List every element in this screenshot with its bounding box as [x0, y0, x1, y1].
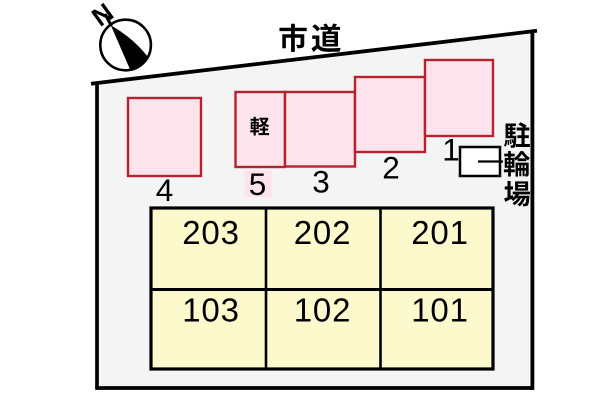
- svg-text:201: 201: [411, 214, 468, 251]
- svg-text:101: 101: [411, 292, 468, 329]
- svg-text:3: 3: [312, 164, 330, 200]
- svg-text:202: 202: [294, 214, 351, 251]
- svg-text:102: 102: [294, 292, 351, 329]
- svg-text:5: 5: [249, 166, 267, 202]
- svg-text:2: 2: [382, 150, 400, 186]
- svg-text:4: 4: [156, 172, 174, 208]
- svg-text:203: 203: [182, 214, 239, 251]
- svg-text:1: 1: [442, 132, 460, 168]
- svg-text:103: 103: [182, 292, 239, 329]
